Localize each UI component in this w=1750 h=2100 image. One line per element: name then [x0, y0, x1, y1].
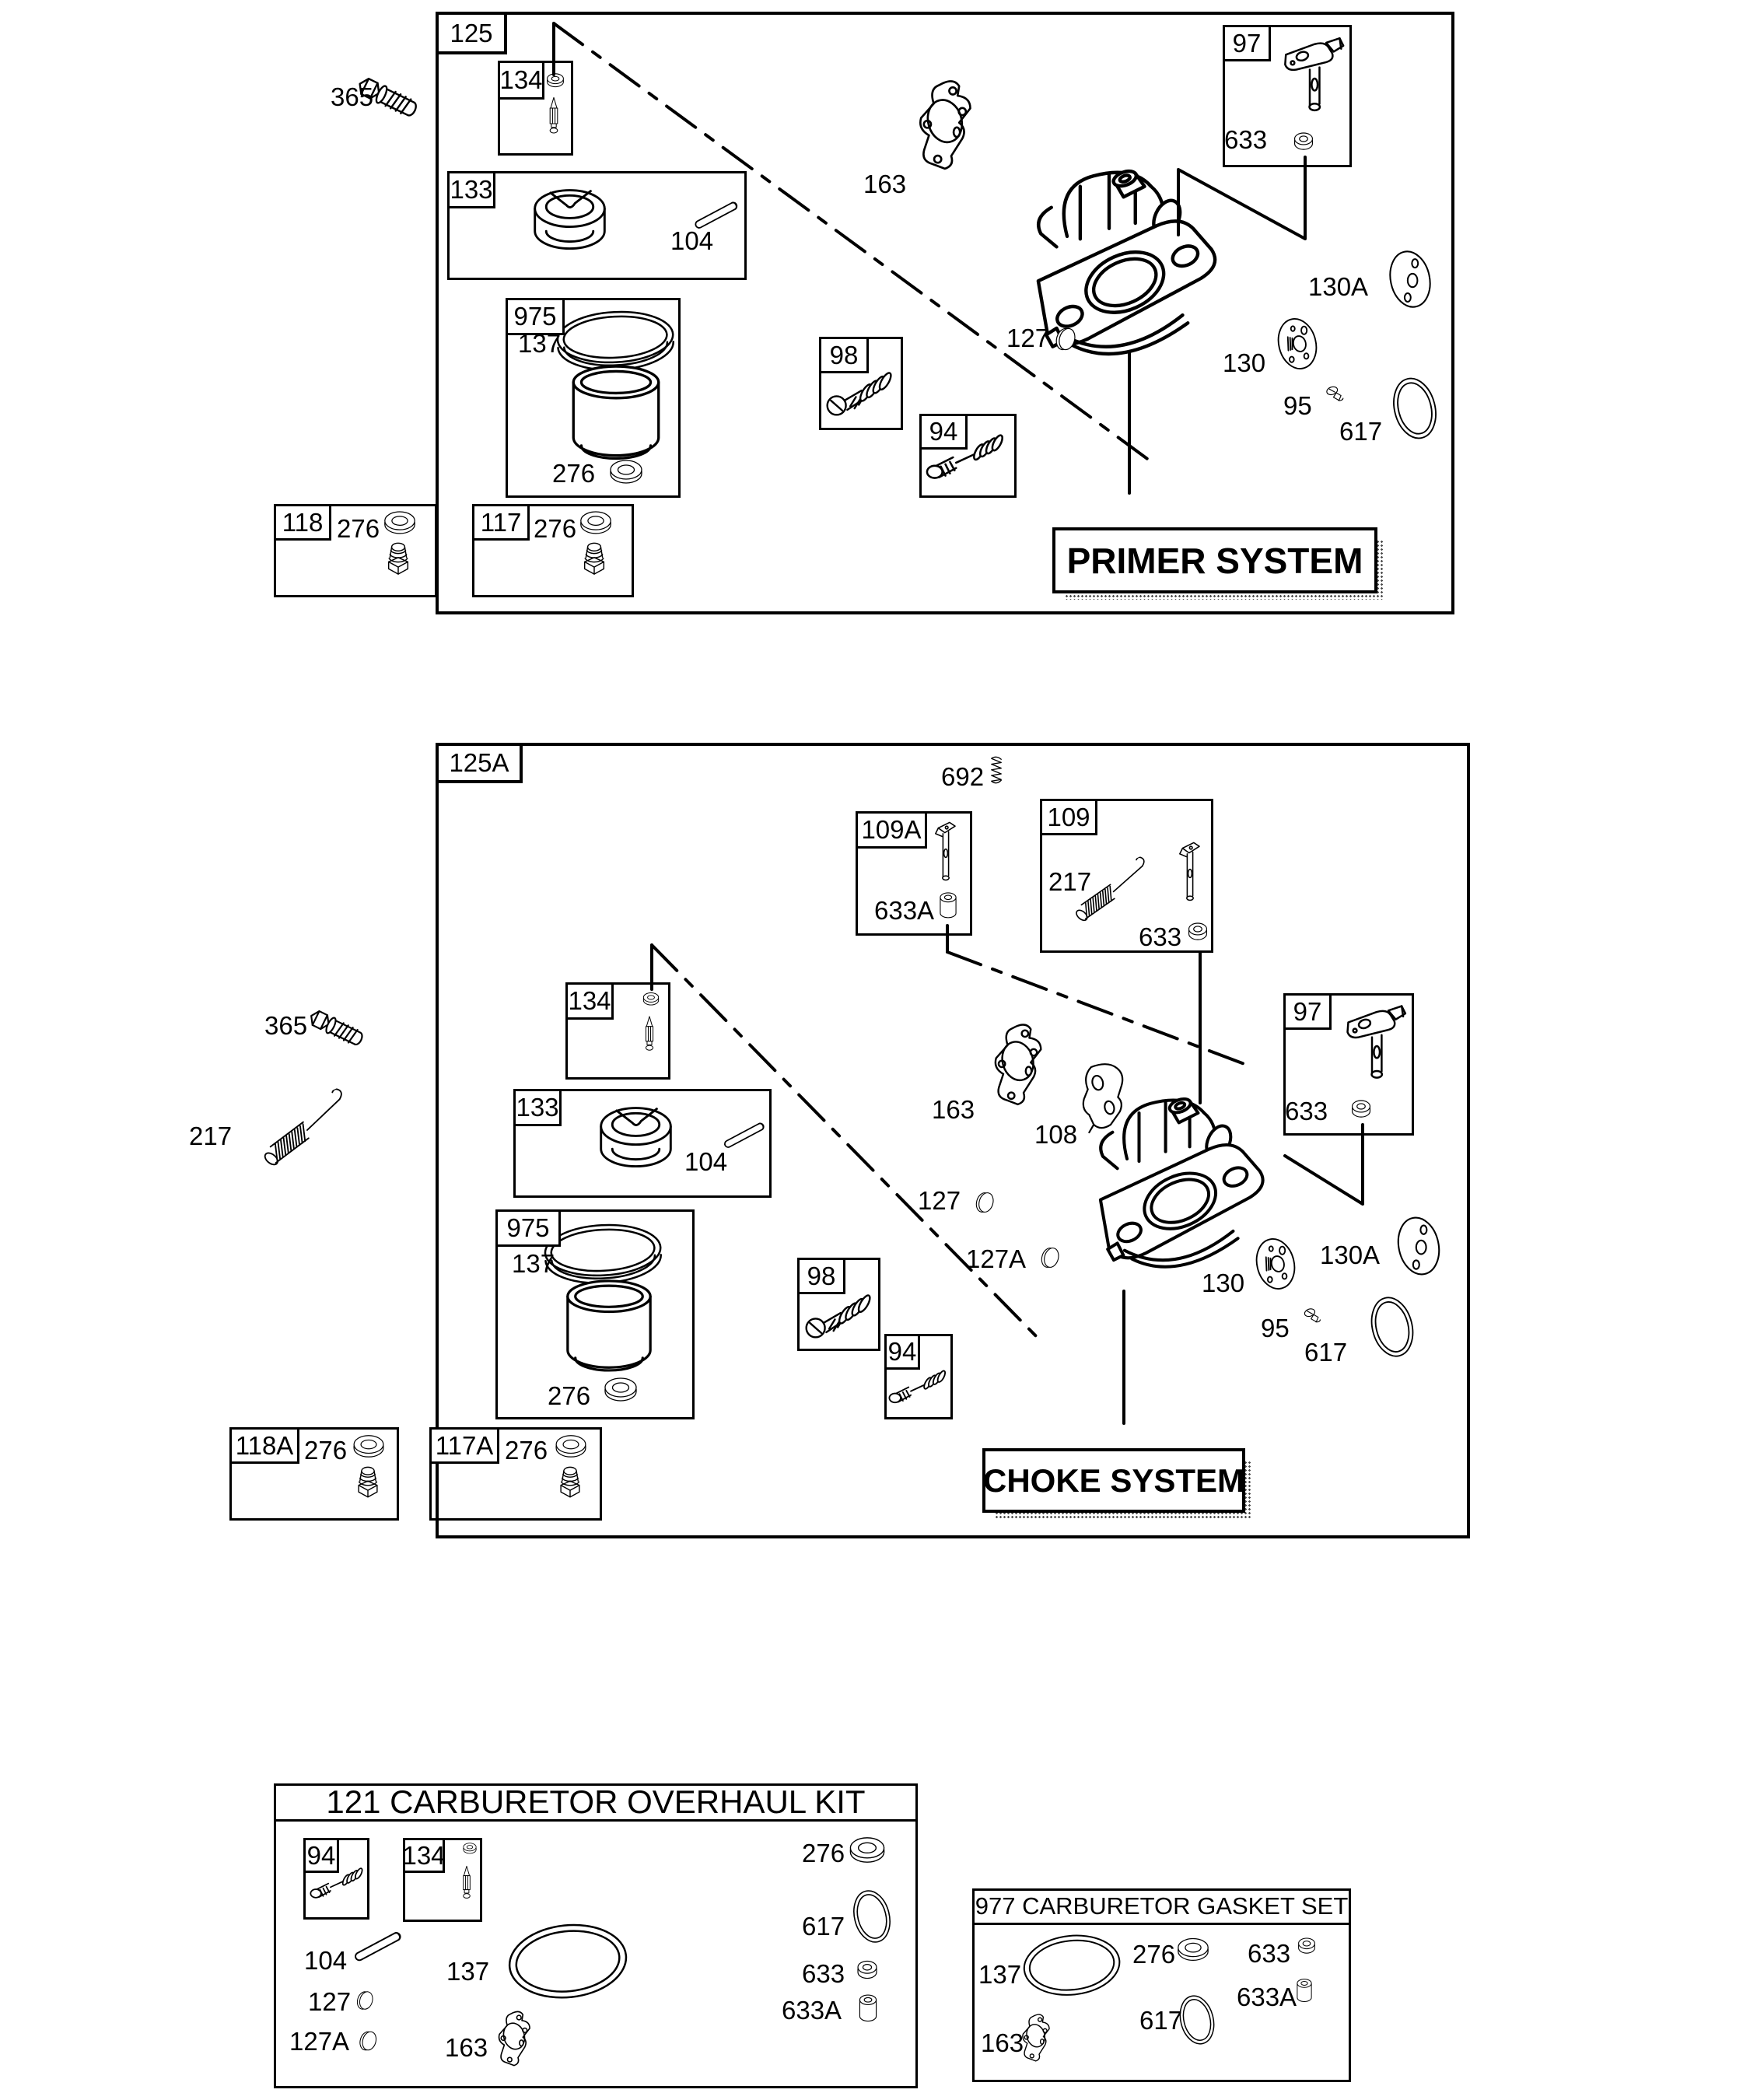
- part-label-130-choke: 130: [1202, 1270, 1244, 1296]
- screw-kit-label-98: 98: [819, 337, 869, 373]
- kit-label-633: 633: [802, 1961, 845, 1986]
- kit-label-137: 137: [446, 1958, 489, 1984]
- kit-needle-label-134: 134: [403, 1838, 445, 1873]
- gasket-set-title: 977 CARBURETOR GASKET SET: [975, 1892, 1348, 1921]
- set-label-276: 276: [1132, 1941, 1175, 1967]
- primer-group-label: 125: [436, 12, 507, 54]
- primer-kit-97-choke-number: 97: [1293, 997, 1322, 1027]
- part-label-217-109: 217: [1048, 869, 1091, 894]
- primer-kit-label-97: 97: [1223, 25, 1271, 61]
- choke-shaft-label-109a: 109A: [856, 811, 927, 849]
- part-label-633-choke: 633: [1285, 1098, 1328, 1124]
- bowl-kit-label-975-choke: 975: [495, 1209, 561, 1247]
- part-label-276-117: 276: [534, 516, 576, 541]
- screw-kit-98-choke-number: 98: [807, 1262, 836, 1291]
- choke-system-title-text: CHOKE SYSTEM: [983, 1462, 1244, 1500]
- float-kit-label-133-choke: 133: [513, 1089, 562, 1126]
- kit-label-633a: 633A: [782, 1997, 842, 2023]
- parts-diagram-page: 125 134 133 975 98 94 97 118 117 PRIMER …: [0, 0, 1750, 2100]
- gasket-set-title-text: 977 CARBURETOR GASKET SET: [975, 1892, 1349, 1920]
- part-label-137-choke: 137: [512, 1251, 555, 1276]
- part-label-127-choke: 127: [918, 1188, 961, 1213]
- float-kit-133-choke-number: 133: [516, 1093, 558, 1122]
- kit-label-163: 163: [445, 2035, 488, 2060]
- choke-system-title: CHOKE SYSTEM: [982, 1448, 1245, 1513]
- primer-group-id: 125: [450, 19, 492, 48]
- part-label-276-choke: 276: [548, 1383, 590, 1409]
- drain-kit-label-118: 118: [274, 504, 331, 541]
- drain-117a-number: 117A: [436, 1431, 494, 1461]
- gasket-set-title-rule: [972, 1923, 1351, 1925]
- part-label-276-118: 276: [337, 516, 380, 541]
- part-label-127: 127: [1006, 325, 1049, 351]
- part-label-163: 163: [863, 171, 906, 197]
- needle-kit-label-134-choke: 134: [565, 982, 614, 1020]
- part-label-276-117a: 276: [505, 1437, 548, 1463]
- screw-kit-98-number: 98: [830, 341, 859, 370]
- part-label-130: 130: [1223, 350, 1265, 376]
- part-label-365: 365: [331, 84, 373, 110]
- part-label-617: 617: [1339, 418, 1382, 444]
- shaft-109a-number: 109A: [861, 815, 921, 845]
- drain-117-number: 117: [481, 508, 522, 537]
- bowl-kit-975-number: 975: [513, 302, 556, 331]
- part-label-617-choke: 617: [1304, 1339, 1347, 1365]
- float-kit-133-number: 133: [450, 175, 492, 205]
- drain-118a-number: 118A: [236, 1431, 294, 1461]
- part-label-633-109: 633: [1139, 924, 1181, 950]
- part-label-95: 95: [1283, 393, 1312, 418]
- primer-kit-label-97-choke: 97: [1283, 993, 1332, 1030]
- mounting-bolt-365-choke-drawing: [307, 1008, 364, 1048]
- set-label-163: 163: [981, 2030, 1024, 2056]
- choke-shaft-label-109: 109: [1040, 799, 1097, 835]
- primer-kit-97-number: 97: [1233, 29, 1262, 58]
- drain-kit-label-117: 117: [472, 504, 530, 541]
- choke-group-id: 125A: [449, 748, 509, 778]
- part-label-163-choke: 163: [932, 1097, 975, 1122]
- kit-94-number: 94: [307, 1841, 336, 1871]
- needle-valve-label-94-choke: 94: [884, 1334, 920, 1370]
- part-label-276: 276: [552, 460, 595, 486]
- needle-valve-94-choke-number: 94: [888, 1337, 917, 1367]
- needle-kit-134-choke-number: 134: [568, 986, 611, 1016]
- part-label-365-choke: 365: [264, 1013, 307, 1038]
- drain-118-number: 118: [282, 508, 324, 537]
- kit-label-617: 617: [802, 1913, 845, 1939]
- shaft-109-number: 109: [1047, 803, 1090, 832]
- drain-kit-label-118a: 118A: [229, 1427, 299, 1464]
- part-label-137: 137: [518, 331, 561, 356]
- needle-valve-label-94: 94: [919, 414, 968, 450]
- part-label-276-118a: 276: [304, 1437, 347, 1463]
- needle-kit-label-134: 134: [498, 61, 544, 100]
- link-spring-217-drawing: [250, 1087, 358, 1170]
- part-label-130a: 130A: [1308, 274, 1368, 299]
- kit-label-127a: 127A: [289, 2028, 349, 2054]
- set-label-633: 633: [1248, 1941, 1290, 1966]
- choke-group-label: 125A: [436, 743, 523, 783]
- part-label-104-choke: 104: [684, 1149, 727, 1174]
- screw-kit-label-98-choke: 98: [797, 1258, 845, 1294]
- drain-kit-label-117a: 117A: [429, 1427, 499, 1464]
- set-label-137: 137: [978, 1962, 1021, 1987]
- set-label-617: 617: [1139, 2007, 1182, 2033]
- kit-needle-valve-label-94: 94: [303, 1838, 339, 1873]
- overhaul-kit-title-text: 121 CARBURETOR OVERHAUL KIT: [326, 1783, 865, 1821]
- needle-valve-94-number: 94: [929, 417, 958, 446]
- overhaul-kit-title: 121 CARBURETOR OVERHAUL KIT: [277, 1786, 915, 1818]
- kit-label-127: 127: [308, 1989, 351, 2014]
- part-label-130a-choke: 130A: [1320, 1242, 1380, 1268]
- part-label-692: 692: [941, 764, 984, 789]
- part-label-108: 108: [1034, 1122, 1077, 1147]
- kit-134-number: 134: [402, 1841, 445, 1871]
- primer-system-title-text: PRIMER SYSTEM: [1067, 540, 1363, 582]
- part-label-127a: 127A: [966, 1246, 1026, 1272]
- kit-label-104: 104: [304, 1948, 347, 1973]
- part-label-104: 104: [670, 228, 713, 254]
- part-label-95-choke: 95: [1261, 1315, 1290, 1341]
- part-label-217: 217: [189, 1123, 232, 1149]
- bowl-kit-975-choke-number: 975: [506, 1213, 549, 1243]
- kit-label-276: 276: [802, 1840, 845, 1866]
- set-label-633a: 633A: [1237, 1984, 1297, 2010]
- part-label-633a: 633A: [874, 898, 934, 923]
- primer-system-title: PRIMER SYSTEM: [1052, 527, 1377, 593]
- part-label-633: 633: [1224, 127, 1267, 152]
- needle-kit-134-number: 134: [499, 65, 542, 95]
- float-kit-label-133: 133: [447, 171, 495, 208]
